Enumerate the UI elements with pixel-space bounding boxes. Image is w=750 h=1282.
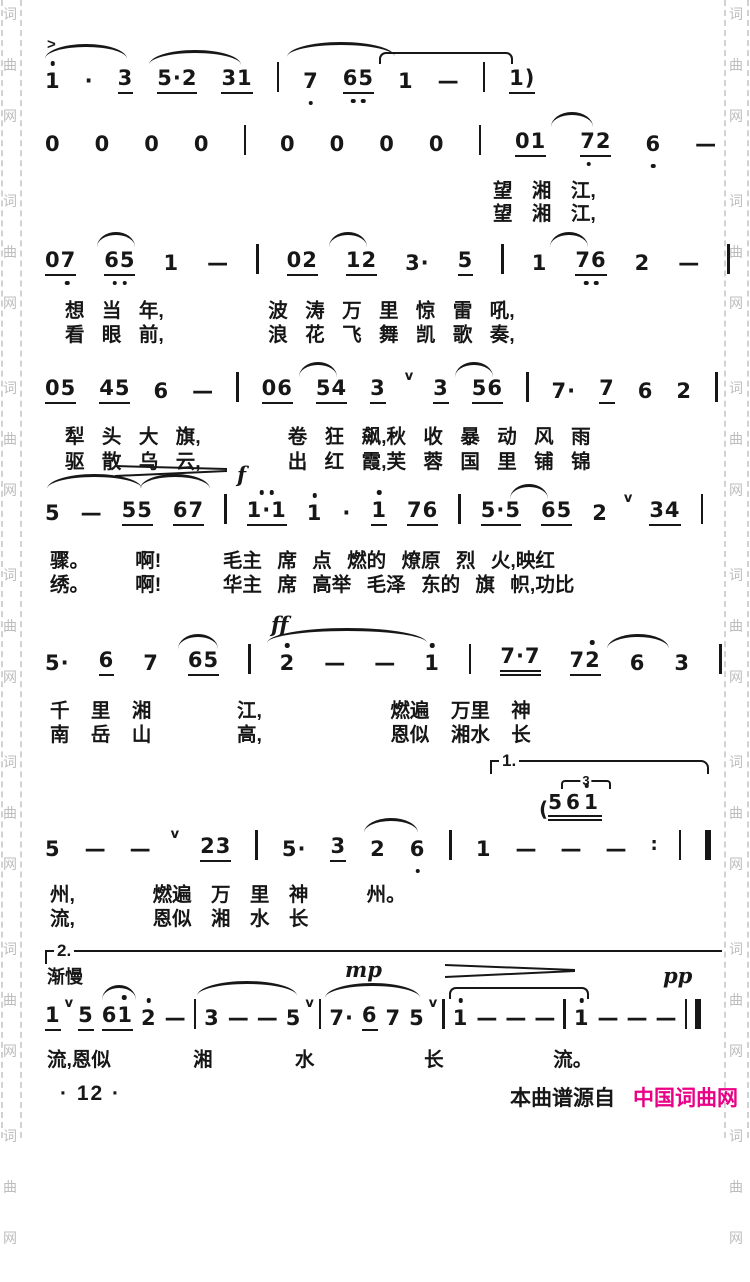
watermark-character: 曲 xyxy=(729,616,743,636)
watermark-character: 词 xyxy=(3,4,17,24)
note: 7 xyxy=(386,1005,402,1031)
watermark-character: 网 xyxy=(3,1041,17,1061)
source-credit: 本曲谱源自 中国词曲网 xyxy=(510,1082,738,1112)
watermark-character: 词 xyxy=(729,378,743,398)
watermark-character: 曲 xyxy=(729,990,743,1010)
notes-row: 1·35·2317651—1) xyxy=(45,60,535,94)
note: — xyxy=(627,1005,648,1031)
note xyxy=(526,372,529,402)
note: 7·7 xyxy=(500,643,540,676)
note xyxy=(679,830,682,860)
note: 0 xyxy=(330,131,346,157)
watermark-character: 网 xyxy=(729,667,743,687)
note: — xyxy=(324,650,345,676)
note: 2 xyxy=(676,378,692,404)
watermark-character: 曲 xyxy=(3,990,17,1010)
note xyxy=(501,244,504,274)
note: 65 xyxy=(188,647,219,676)
dynamic-marking-pp: pp xyxy=(663,963,692,988)
watermark-character: 网 xyxy=(3,106,17,126)
left-inner-dashed-border xyxy=(20,0,22,1138)
note: 76 xyxy=(575,247,606,276)
watermark-character: 词 xyxy=(729,752,743,772)
note xyxy=(255,830,258,860)
note: — xyxy=(192,378,213,404)
note: 05 xyxy=(45,375,76,404)
note: 56 xyxy=(472,375,503,404)
note: 3 xyxy=(204,1005,220,1031)
note: 45 xyxy=(99,375,130,404)
watermark-character: 词 xyxy=(3,939,17,959)
lyric-line: 南 岳 山 高, 恩似 湘水 长 xyxy=(50,718,531,747)
note: 1 xyxy=(476,836,492,862)
note: 0 xyxy=(95,131,111,157)
note xyxy=(685,999,688,1029)
note xyxy=(701,494,704,524)
notes-row: 1v5612—3——5v7·675v1———1——— xyxy=(45,997,701,1031)
note: 5 xyxy=(45,500,61,526)
note: 7· xyxy=(552,378,577,404)
watermark-character: 曲 xyxy=(3,55,17,75)
note xyxy=(705,830,711,860)
dynamic-marking: f xyxy=(237,462,246,487)
note: v xyxy=(65,991,74,1017)
watermark-character: 曲 xyxy=(729,1177,743,1197)
watermark-character: 网 xyxy=(729,854,743,874)
note: 5 xyxy=(458,247,474,276)
notes-row: 05456—06543v3567·762 xyxy=(45,370,718,404)
cue-note-group: 561 xyxy=(548,790,602,821)
page-number: · 12 · xyxy=(60,1082,121,1106)
note: 0 xyxy=(45,131,61,157)
note: 1 xyxy=(532,250,548,276)
watermark-character: 词 xyxy=(729,565,743,585)
note: 6 xyxy=(153,378,169,404)
note: 5 xyxy=(78,1002,94,1031)
note xyxy=(483,62,486,92)
watermark-character: 曲 xyxy=(729,429,743,449)
note: 23 xyxy=(200,833,231,862)
note: 65 xyxy=(343,65,374,94)
lyric-line: 看 眼 前, 浪 花 飞 舞 凯 歌 奏, xyxy=(65,318,515,347)
note xyxy=(244,125,247,155)
note: — xyxy=(534,1005,555,1031)
watermark-character: 网 xyxy=(3,293,17,313)
note: — xyxy=(81,500,102,526)
watermark-character: 曲 xyxy=(729,242,743,262)
note: 1 xyxy=(371,497,387,526)
slur xyxy=(287,42,395,57)
note: 7 xyxy=(599,375,615,404)
note: 72 xyxy=(580,128,611,157)
note: 3 xyxy=(118,65,134,94)
note: 06 xyxy=(262,375,293,404)
watermark-character: 词 xyxy=(3,565,17,585)
note: 3· xyxy=(405,250,430,276)
notes-row: 5—55671·11·1765·5652v34 xyxy=(45,492,703,526)
watermark-character: 网 xyxy=(3,854,17,874)
note: — xyxy=(228,1005,249,1031)
slur xyxy=(45,44,127,59)
note: — xyxy=(515,836,536,862)
notes-row: 07651—02123·51762— xyxy=(45,242,730,276)
note: 2 xyxy=(635,250,651,276)
volta-bracket-2: 2. xyxy=(45,950,722,964)
note: v xyxy=(405,364,414,390)
note: 02 xyxy=(287,247,318,276)
note: 2 xyxy=(141,1005,157,1031)
note: 12 xyxy=(346,247,377,276)
tempo-marking: 渐慢 xyxy=(47,963,83,989)
note: — xyxy=(476,1005,497,1031)
note xyxy=(469,644,472,674)
watermark-character: 网 xyxy=(3,667,17,687)
note: 6 xyxy=(645,131,661,157)
note: 2 xyxy=(280,650,296,676)
note: 5 xyxy=(409,1005,425,1031)
note: 2 xyxy=(370,836,386,862)
right-edge-dashed-border xyxy=(747,0,749,1138)
note: 54 xyxy=(316,375,347,404)
note: — xyxy=(207,250,228,276)
note: 34 xyxy=(649,497,680,526)
watermark-character: 网 xyxy=(729,293,743,313)
note: 6 xyxy=(410,836,426,862)
watermark-character: 曲 xyxy=(3,429,17,449)
note: — xyxy=(656,1005,677,1031)
source-site-name: 中国词曲网 xyxy=(633,1082,738,1112)
note: 1 xyxy=(398,68,414,94)
lyric-line: 绣。 啊! 华主 席 高举 毛泽 东的 旗 帜,功比 xyxy=(50,568,574,597)
cue-paren: ( xyxy=(539,797,548,821)
note: 1 xyxy=(45,68,61,94)
note: 6 xyxy=(362,1002,378,1031)
note: — xyxy=(85,836,106,862)
note xyxy=(458,494,461,524)
note: — xyxy=(257,1005,278,1031)
note: v xyxy=(171,822,180,848)
note xyxy=(715,372,718,402)
note: — xyxy=(598,1005,619,1031)
note: 1 xyxy=(574,1005,590,1031)
watermark-character: 词 xyxy=(3,1126,17,1146)
notes-row: 5——v235·3261———: xyxy=(45,828,711,862)
watermark-character: 词 xyxy=(729,939,743,959)
note: 67 xyxy=(173,497,204,526)
note: v xyxy=(429,991,438,1017)
note: — xyxy=(560,836,581,862)
note xyxy=(449,830,452,860)
note: — xyxy=(695,131,716,157)
note: 65 xyxy=(541,497,572,526)
note: 5·2 xyxy=(157,65,197,94)
note: 6 xyxy=(99,647,115,676)
note: 31 xyxy=(221,65,252,94)
note: — xyxy=(438,68,459,94)
watermark-character: 词 xyxy=(729,4,743,24)
slur xyxy=(325,983,420,998)
note: 6 xyxy=(638,378,654,404)
slur xyxy=(267,628,427,643)
note: 2 xyxy=(592,500,608,526)
note: 6 xyxy=(630,650,646,676)
watermark-character: 词 xyxy=(3,378,17,398)
note: 55 xyxy=(122,497,153,526)
lyric-line: 流, 恩似 湘 水 长 xyxy=(50,902,308,931)
watermark-character: 网 xyxy=(3,480,17,500)
decrescendo-hairpin xyxy=(445,963,575,978)
lyric-line: 望 湘 江, xyxy=(493,197,596,226)
cue-notes: ( 561 xyxy=(539,790,602,821)
note: — xyxy=(130,836,151,862)
note: 7 xyxy=(303,68,319,94)
note: · xyxy=(342,500,351,526)
watermark-character: 词 xyxy=(729,1126,743,1146)
watermark-character: 曲 xyxy=(729,803,743,823)
note xyxy=(563,999,566,1029)
note: 0 xyxy=(429,131,445,157)
note: — xyxy=(165,1005,186,1031)
note: — xyxy=(505,1005,526,1031)
watermark-character: 曲 xyxy=(3,242,17,262)
watermark-character: 网 xyxy=(729,1228,743,1248)
note: 1 xyxy=(453,1005,469,1031)
note: 0 xyxy=(144,131,160,157)
note: · xyxy=(85,68,94,94)
note xyxy=(194,999,197,1029)
watermark-character: 网 xyxy=(729,480,743,500)
note xyxy=(224,494,227,524)
note: 5·5 xyxy=(481,497,521,526)
note: 01 xyxy=(515,128,546,157)
dynamic-marking-mp: mp xyxy=(345,957,382,982)
note: 65 xyxy=(104,247,135,276)
watermark-character: 网 xyxy=(3,1228,17,1248)
watermark-character: 网 xyxy=(729,1041,743,1061)
note: v xyxy=(624,486,633,512)
note xyxy=(319,999,322,1029)
note: — xyxy=(374,650,395,676)
note: 72 xyxy=(570,647,601,676)
note: 3 xyxy=(433,375,449,404)
notes-row: 5·67652——17·77263 xyxy=(45,642,722,676)
note xyxy=(236,372,239,402)
note xyxy=(256,244,259,274)
note: v xyxy=(305,991,314,1017)
note xyxy=(727,244,730,274)
note: — xyxy=(678,250,699,276)
note: 1 xyxy=(307,500,323,526)
note: 76 xyxy=(407,497,438,526)
note xyxy=(277,62,280,92)
note: : xyxy=(650,832,658,858)
note xyxy=(442,999,445,1029)
note: 5· xyxy=(282,836,307,862)
watermark-character: 词 xyxy=(3,752,17,772)
volta-label: 2. xyxy=(54,941,74,961)
note: 1) xyxy=(509,65,535,94)
watermark-character: 曲 xyxy=(3,803,17,823)
note: 0 xyxy=(194,131,210,157)
note: 0 xyxy=(379,131,395,157)
note xyxy=(248,644,251,674)
watermark-character: 曲 xyxy=(3,616,17,636)
note: 3 xyxy=(370,375,386,404)
watermark-character: 曲 xyxy=(3,1177,17,1197)
note: 07 xyxy=(45,247,76,276)
note: 1·1 xyxy=(247,497,287,526)
note: 1 xyxy=(424,650,440,676)
note: 7 xyxy=(143,650,159,676)
volta-label: 1. xyxy=(499,751,519,771)
slur xyxy=(197,981,297,996)
volta-bracket-1: 1. xyxy=(490,760,709,774)
note: 0 xyxy=(280,131,296,157)
watermark-character: 词 xyxy=(3,191,17,211)
note: 1 xyxy=(163,250,179,276)
note xyxy=(695,999,701,1029)
note xyxy=(719,644,722,674)
note: 5 xyxy=(286,1005,302,1031)
note: — xyxy=(605,836,626,862)
note: 3 xyxy=(674,650,690,676)
note: 5 xyxy=(45,836,61,862)
note: 5· xyxy=(45,650,70,676)
source-credit-prefix: 本曲谱源自 xyxy=(510,1082,615,1112)
right-inner-dashed-border xyxy=(724,0,726,1138)
note xyxy=(479,125,482,155)
note: 7· xyxy=(329,1005,354,1031)
lyric-line: 流,恩似 湘 水 长 流。 xyxy=(47,1043,592,1072)
note: 3 xyxy=(330,833,346,862)
note: 1 xyxy=(45,1002,61,1031)
note: 61 xyxy=(102,1002,133,1031)
notes-row: 0000000001726— xyxy=(45,123,750,157)
watermark-left: 词曲网词曲网词曲网词曲网词曲网词曲网词曲网 xyxy=(3,4,17,1282)
watermark-character: 曲 xyxy=(729,55,743,75)
watermark-character: 词 xyxy=(729,191,743,211)
